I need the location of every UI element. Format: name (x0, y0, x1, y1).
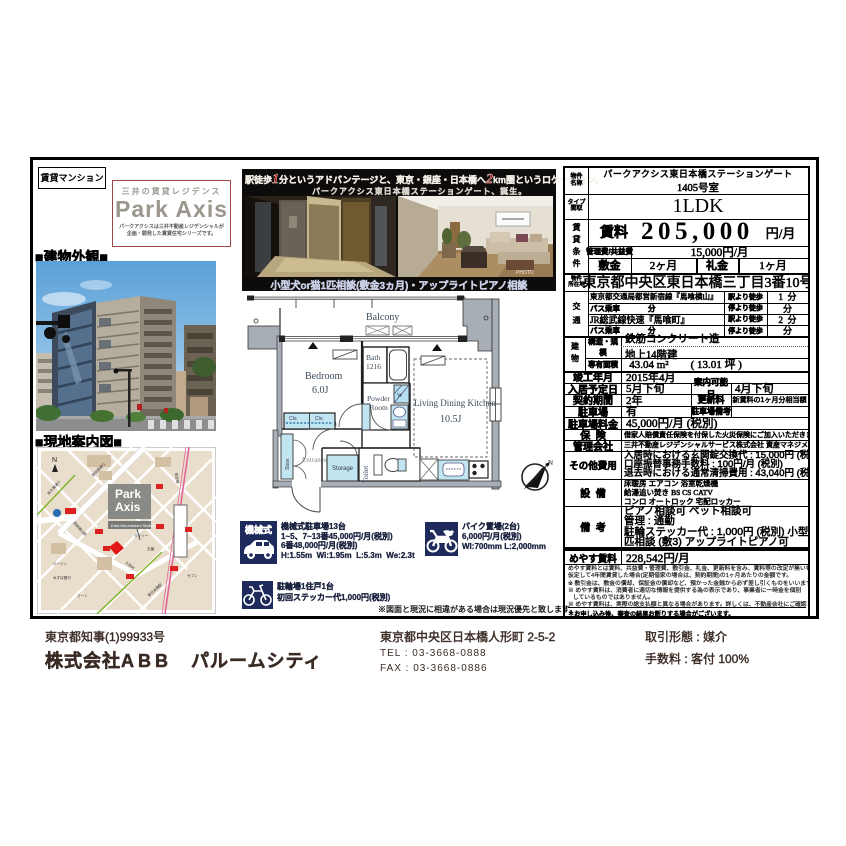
svg-text:ダイソー: ダイソー (134, 533, 149, 538)
svg-text:Powder: Powder (367, 394, 390, 403)
svg-text:PHOTO: PHOTO (516, 270, 534, 276)
svg-text:6.0J: 6.0J (312, 385, 329, 396)
svg-text:セブン: セブン (187, 573, 198, 578)
svg-text:Balcony: Balcony (366, 312, 399, 323)
svg-text:Axis: Axis (115, 500, 141, 514)
svg-text:Entrance: Entrance (302, 456, 327, 464)
svg-text:ローソン: ローソン (53, 562, 68, 566)
svg-text:Clo.: Clo. (315, 416, 324, 422)
svg-text:Bath: Bath (366, 353, 380, 362)
svg-text:Bedroom: Bedroom (305, 371, 342, 382)
svg-text:N: N (548, 459, 553, 467)
svg-text:10.5J: 10.5J (440, 414, 462, 425)
svg-text:Clo.: Clo. (289, 416, 298, 422)
svg-text:Sbox: Sbox (285, 458, 291, 470)
svg-text:Storage: Storage (332, 466, 354, 472)
svg-text:1216: 1216 (366, 362, 381, 371)
svg-text:交番: 交番 (147, 546, 155, 551)
svg-text:みずほ銀行: みずほ銀行 (53, 575, 71, 580)
svg-text:マート: マート (77, 593, 88, 598)
svg-text:Living Dining Kitchen: Living Dining Kitchen (414, 398, 496, 408)
svg-text:Toilet: Toilet (361, 465, 370, 483)
svg-text:W: W (397, 393, 403, 399)
svg-text:Park: Park (115, 487, 141, 501)
svg-text:N: N (52, 457, 57, 464)
